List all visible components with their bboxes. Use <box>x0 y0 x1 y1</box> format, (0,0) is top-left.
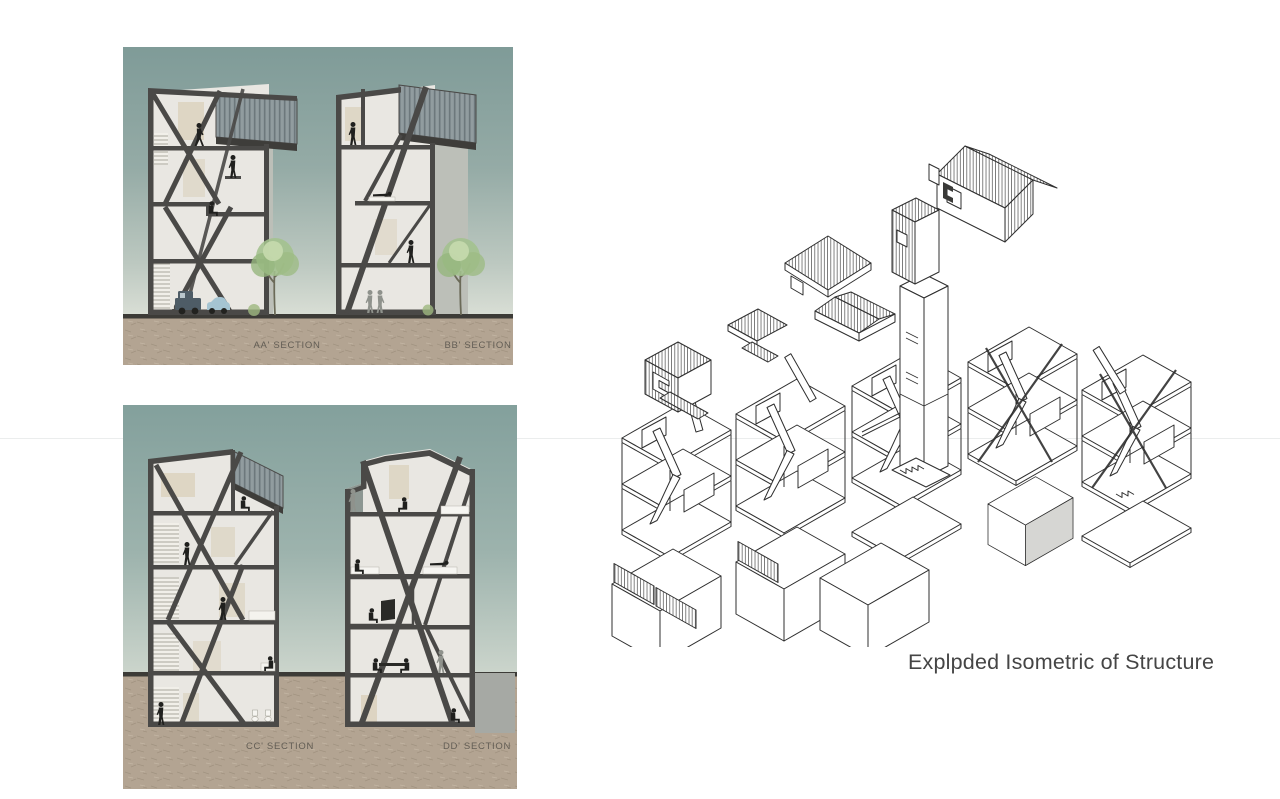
roof-volume-flat-small <box>728 309 787 347</box>
basement-gray-block <box>475 673 515 733</box>
bush <box>423 305 434 316</box>
podium-box-small <box>988 477 1073 566</box>
architecture-presentation-sheet: AA' SECTION BB' SECTION <box>0 0 1280 799</box>
bush <box>248 304 260 316</box>
exploded-isometric-drawing <box>600 132 1212 647</box>
sections-ab-panel: AA' SECTION BB' SECTION <box>123 47 513 365</box>
roof-sliver <box>742 342 778 362</box>
section-cc-label: CC' SECTION <box>246 741 314 752</box>
section-aa-label: AA' SECTION <box>253 340 320 351</box>
roof-volume-gabled-house <box>929 146 1057 242</box>
exploded-isometric-figure <box>600 132 1212 647</box>
sections-ab-drawing <box>123 47 513 365</box>
roof-volume-gabled-mid <box>815 292 895 341</box>
roof-volume-flat-large <box>785 236 871 297</box>
roof-volume-tower <box>892 198 939 284</box>
bed <box>441 506 469 514</box>
section-cc-drawing <box>148 449 283 727</box>
sofa <box>249 611 275 620</box>
floor-plate-stack <box>968 327 1077 486</box>
core-tower <box>892 274 950 487</box>
easel <box>381 599 395 621</box>
isometric-caption: Explpded Isometric of Structure <box>908 650 1214 675</box>
floor-plate-stack <box>1082 355 1191 514</box>
sections-cd-panel: CC' SECTION DD' SECTION <box>123 405 517 789</box>
lounge <box>423 567 457 574</box>
iso-art <box>612 146 1191 647</box>
section-bb-label: BB' SECTION <box>444 340 511 351</box>
floor-plate-stack <box>736 379 845 538</box>
floor-plate <box>1082 501 1191 568</box>
section-dd-label: DD' SECTION <box>443 741 511 752</box>
sections-cd-drawing <box>123 405 517 789</box>
section-bb-drawing <box>336 85 485 316</box>
chaise <box>369 197 395 201</box>
desk <box>379 663 405 666</box>
floor-plate-stack <box>622 403 731 562</box>
